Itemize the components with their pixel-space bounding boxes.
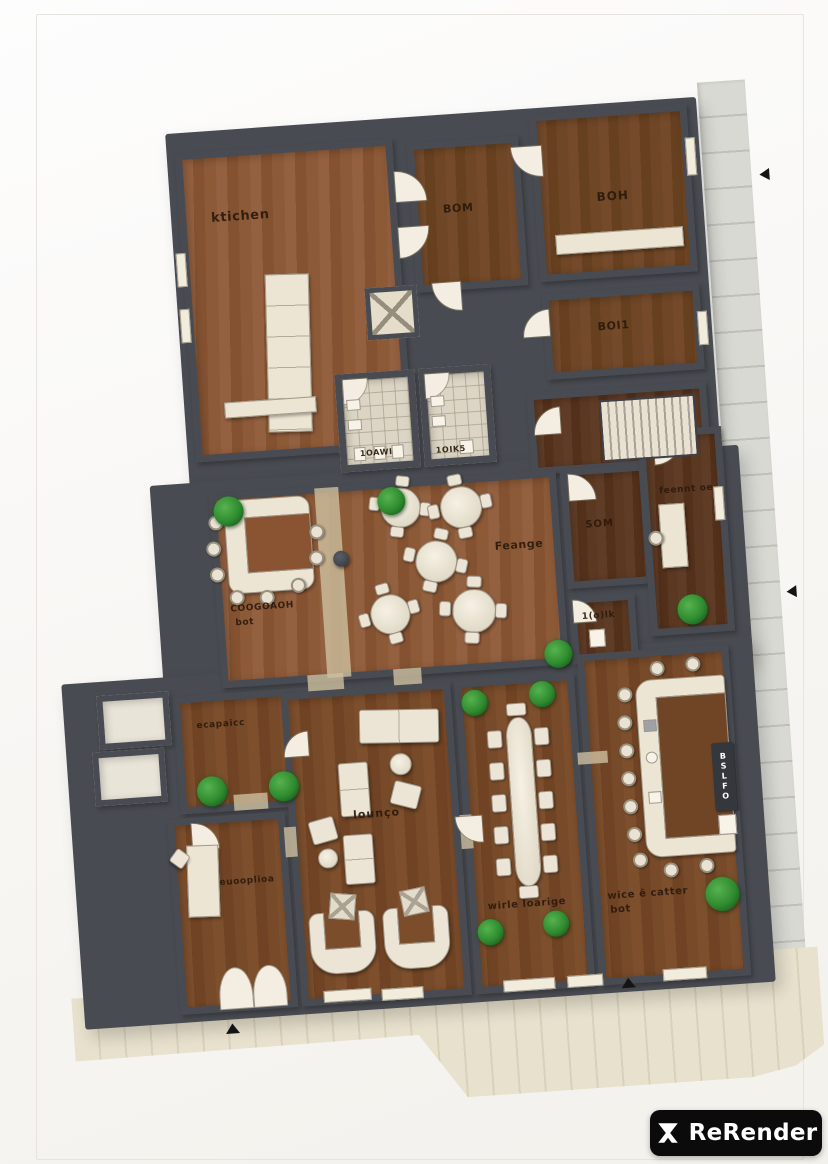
elevator-shaft: [364, 285, 420, 341]
toilet-fixture: [430, 395, 445, 407]
rerender-logo-text: ReRender: [689, 1120, 818, 1146]
toilet-fixture: [431, 415, 446, 427]
reception-desk: [186, 845, 220, 918]
bar-equipment: [643, 719, 657, 732]
cocktail-bar-inner: [244, 513, 314, 573]
toilet-fixture: [391, 444, 404, 459]
rerender-logo-icon: [655, 1120, 681, 1146]
coffee-table: [399, 886, 430, 917]
room-annex-2: [92, 748, 168, 807]
arrow-marker-icon: [786, 585, 797, 598]
sofa: [359, 708, 440, 743]
rerender-badge: ReRender: [650, 1110, 822, 1156]
room-label-boh-right: BOI1: [597, 318, 630, 333]
toilet-fixture: [346, 399, 361, 411]
room-label-boh-top-middle: BOM: [443, 201, 474, 216]
bar-display-unit: BSLFO: [711, 742, 738, 811]
room-label-cocktail-bar-2: bot: [235, 617, 254, 628]
toilet-fixture: [348, 419, 363, 431]
room-label-boh-top-right: BOH: [596, 188, 629, 204]
threshold: [307, 673, 344, 691]
page: { "branding": { "watermark": "ReRender" …: [0, 0, 828, 1164]
room-label-som: SOM: [585, 518, 614, 531]
sofa: [342, 833, 375, 885]
room-annex-1: [96, 691, 172, 750]
room-label-wine-bar-2: bot: [610, 903, 631, 915]
threshold: [393, 667, 422, 685]
window-sill: [567, 974, 604, 988]
bar-equipment: [648, 791, 662, 804]
banquet-table-group: [484, 701, 562, 901]
threshold: [577, 751, 608, 765]
dining-table: [437, 573, 510, 646]
floorplan: BSLFO ktichen BOM BOH BOI1 1OAWI 1OIK5 F…: [55, 96, 764, 1039]
bar-unit-label: BSLFO: [718, 751, 730, 802]
threshold: [233, 793, 268, 811]
wc-fixture: [589, 629, 606, 648]
bar-equipment: [718, 814, 737, 835]
staircase: [599, 394, 699, 463]
coffee-table: [329, 893, 357, 921]
arrow-marker-icon: [759, 168, 770, 181]
arrow-marker-icon: [225, 1023, 240, 1034]
threshold: [284, 827, 298, 858]
arrow-marker-icon: [621, 977, 636, 988]
